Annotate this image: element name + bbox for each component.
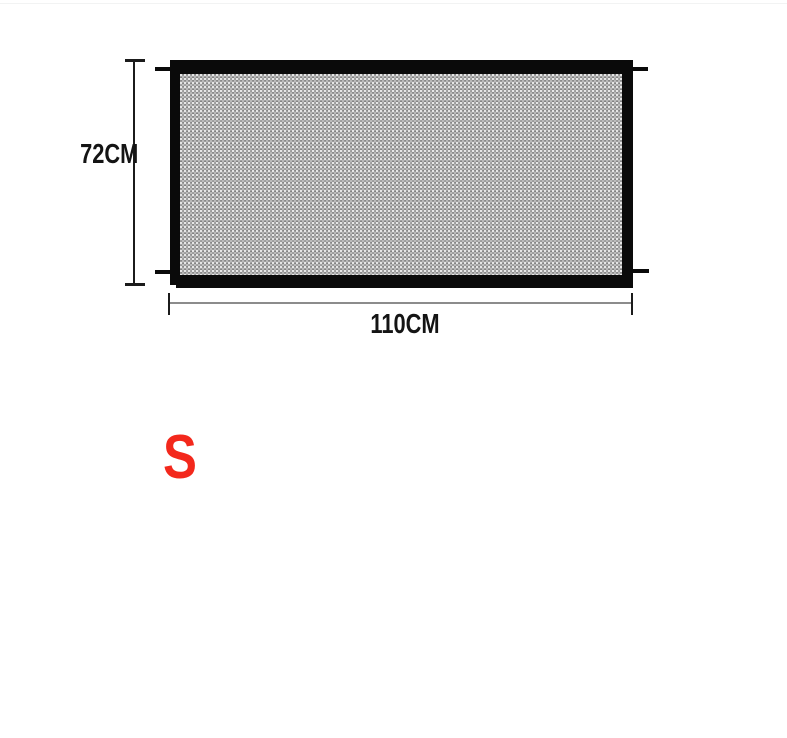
width-dimension-line <box>169 302 632 304</box>
height-dimension-label: 72CM <box>80 138 130 170</box>
gate-hook-tab-top-right <box>632 67 648 71</box>
gate-hook-tab-bottom-left <box>155 270 171 274</box>
gate-frame <box>170 60 633 285</box>
top-divider-line <box>0 3 787 4</box>
gate-hook-tab-bottom-right <box>633 269 649 273</box>
height-dimension-line <box>133 60 135 286</box>
width-dimension-label: 110CM <box>222 308 589 340</box>
size-label: S <box>163 416 197 489</box>
height-dimension-cap-bottom <box>125 283 145 286</box>
gate-hook-tab-top-left <box>155 67 171 71</box>
height-dimension-cap-top <box>125 59 145 62</box>
gate-bottom-bar <box>176 275 633 288</box>
product-diagram: 72CM 110CM S <box>0 0 787 738</box>
width-dimension-tick-right <box>631 293 633 315</box>
gate-mesh <box>180 74 622 276</box>
width-dimension-tick-left <box>168 293 170 315</box>
